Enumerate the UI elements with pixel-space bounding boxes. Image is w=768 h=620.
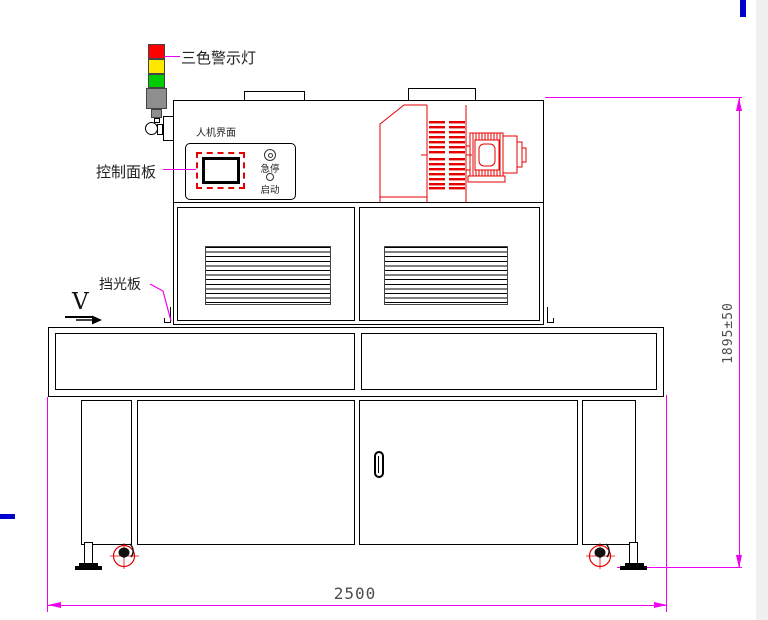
warning-light-base <box>146 88 167 109</box>
conveyor-opening-left <box>55 333 355 390</box>
height-dimension-line <box>739 98 740 568</box>
light-shield-leader <box>148 280 174 324</box>
warning-light-label: 三色警示灯 <box>181 47 256 68</box>
width-arrow-left <box>48 602 61 608</box>
blower-motor-assembly <box>376 86 530 204</box>
door-handle-groove <box>378 456 379 473</box>
width-arrow-right <box>654 602 667 608</box>
hmi-touchscreen[interactable] <box>202 157 240 184</box>
motor-end-cap <box>503 136 517 173</box>
hmi-panel-title: 人机界面 <box>196 124 236 139</box>
leveling-foot-right-base <box>620 566 647 570</box>
right-edge-strip <box>756 0 768 620</box>
conveyor-direction-symbol: V <box>72 289 89 315</box>
control-panel-label: 控制面板 <box>96 161 156 182</box>
caster-wheel-right <box>586 543 616 571</box>
vent-grille-right <box>384 246 508 305</box>
extension-line-right <box>666 395 667 612</box>
emergency-stop-button-dot <box>268 153 273 158</box>
blower-volute <box>380 105 427 203</box>
control-panel-leader <box>163 169 196 170</box>
width-dimension-line <box>48 605 667 606</box>
blue-mark-top-right <box>740 0 746 17</box>
extension-line-top <box>545 97 742 98</box>
warning-light-leader <box>164 56 180 57</box>
leveling-foot-left <box>84 542 93 564</box>
extension-line-left <box>47 397 48 612</box>
vent-grille-left <box>205 246 331 305</box>
blue-mark-left <box>0 514 15 519</box>
cabinet-door-left[interactable] <box>137 400 355 545</box>
leveling-foot-left-base <box>75 566 102 570</box>
machine-elevation-drawing: 1895±50 2500 <box>0 0 768 620</box>
caster-wheel-left <box>110 543 140 571</box>
warning-light-bracket-nub <box>157 124 163 135</box>
cabinet-side-panel-left <box>81 400 132 545</box>
start-button[interactable] <box>266 173 274 181</box>
conveyor-opening-right <box>361 333 657 390</box>
height-dimension-text: 1895±50 <box>721 298 735 368</box>
cabinet-door-right[interactable] <box>359 400 578 545</box>
warning-light-green <box>148 74 165 88</box>
warning-light-yellow <box>148 59 165 74</box>
start-label: 启动 <box>254 182 286 196</box>
motor-coupling <box>466 146 470 170</box>
warning-light-red <box>148 44 165 59</box>
motor-base <box>468 176 505 182</box>
door-handle[interactable] <box>374 451 384 478</box>
light-shield-bracket-right-tick <box>553 318 554 323</box>
cabinet-side-panel-right <box>582 400 636 545</box>
warning-light-connector <box>151 109 162 118</box>
height-arrow-up <box>736 98 742 111</box>
warning-light-wall-bracket <box>163 116 174 141</box>
conveyor-direction-arrow <box>76 314 102 326</box>
light-shield-label: 挡光板 <box>99 274 141 294</box>
leveling-foot-right <box>629 542 638 564</box>
duct-louvers <box>429 121 465 189</box>
width-dimension-text: 2500 <box>295 584 415 603</box>
